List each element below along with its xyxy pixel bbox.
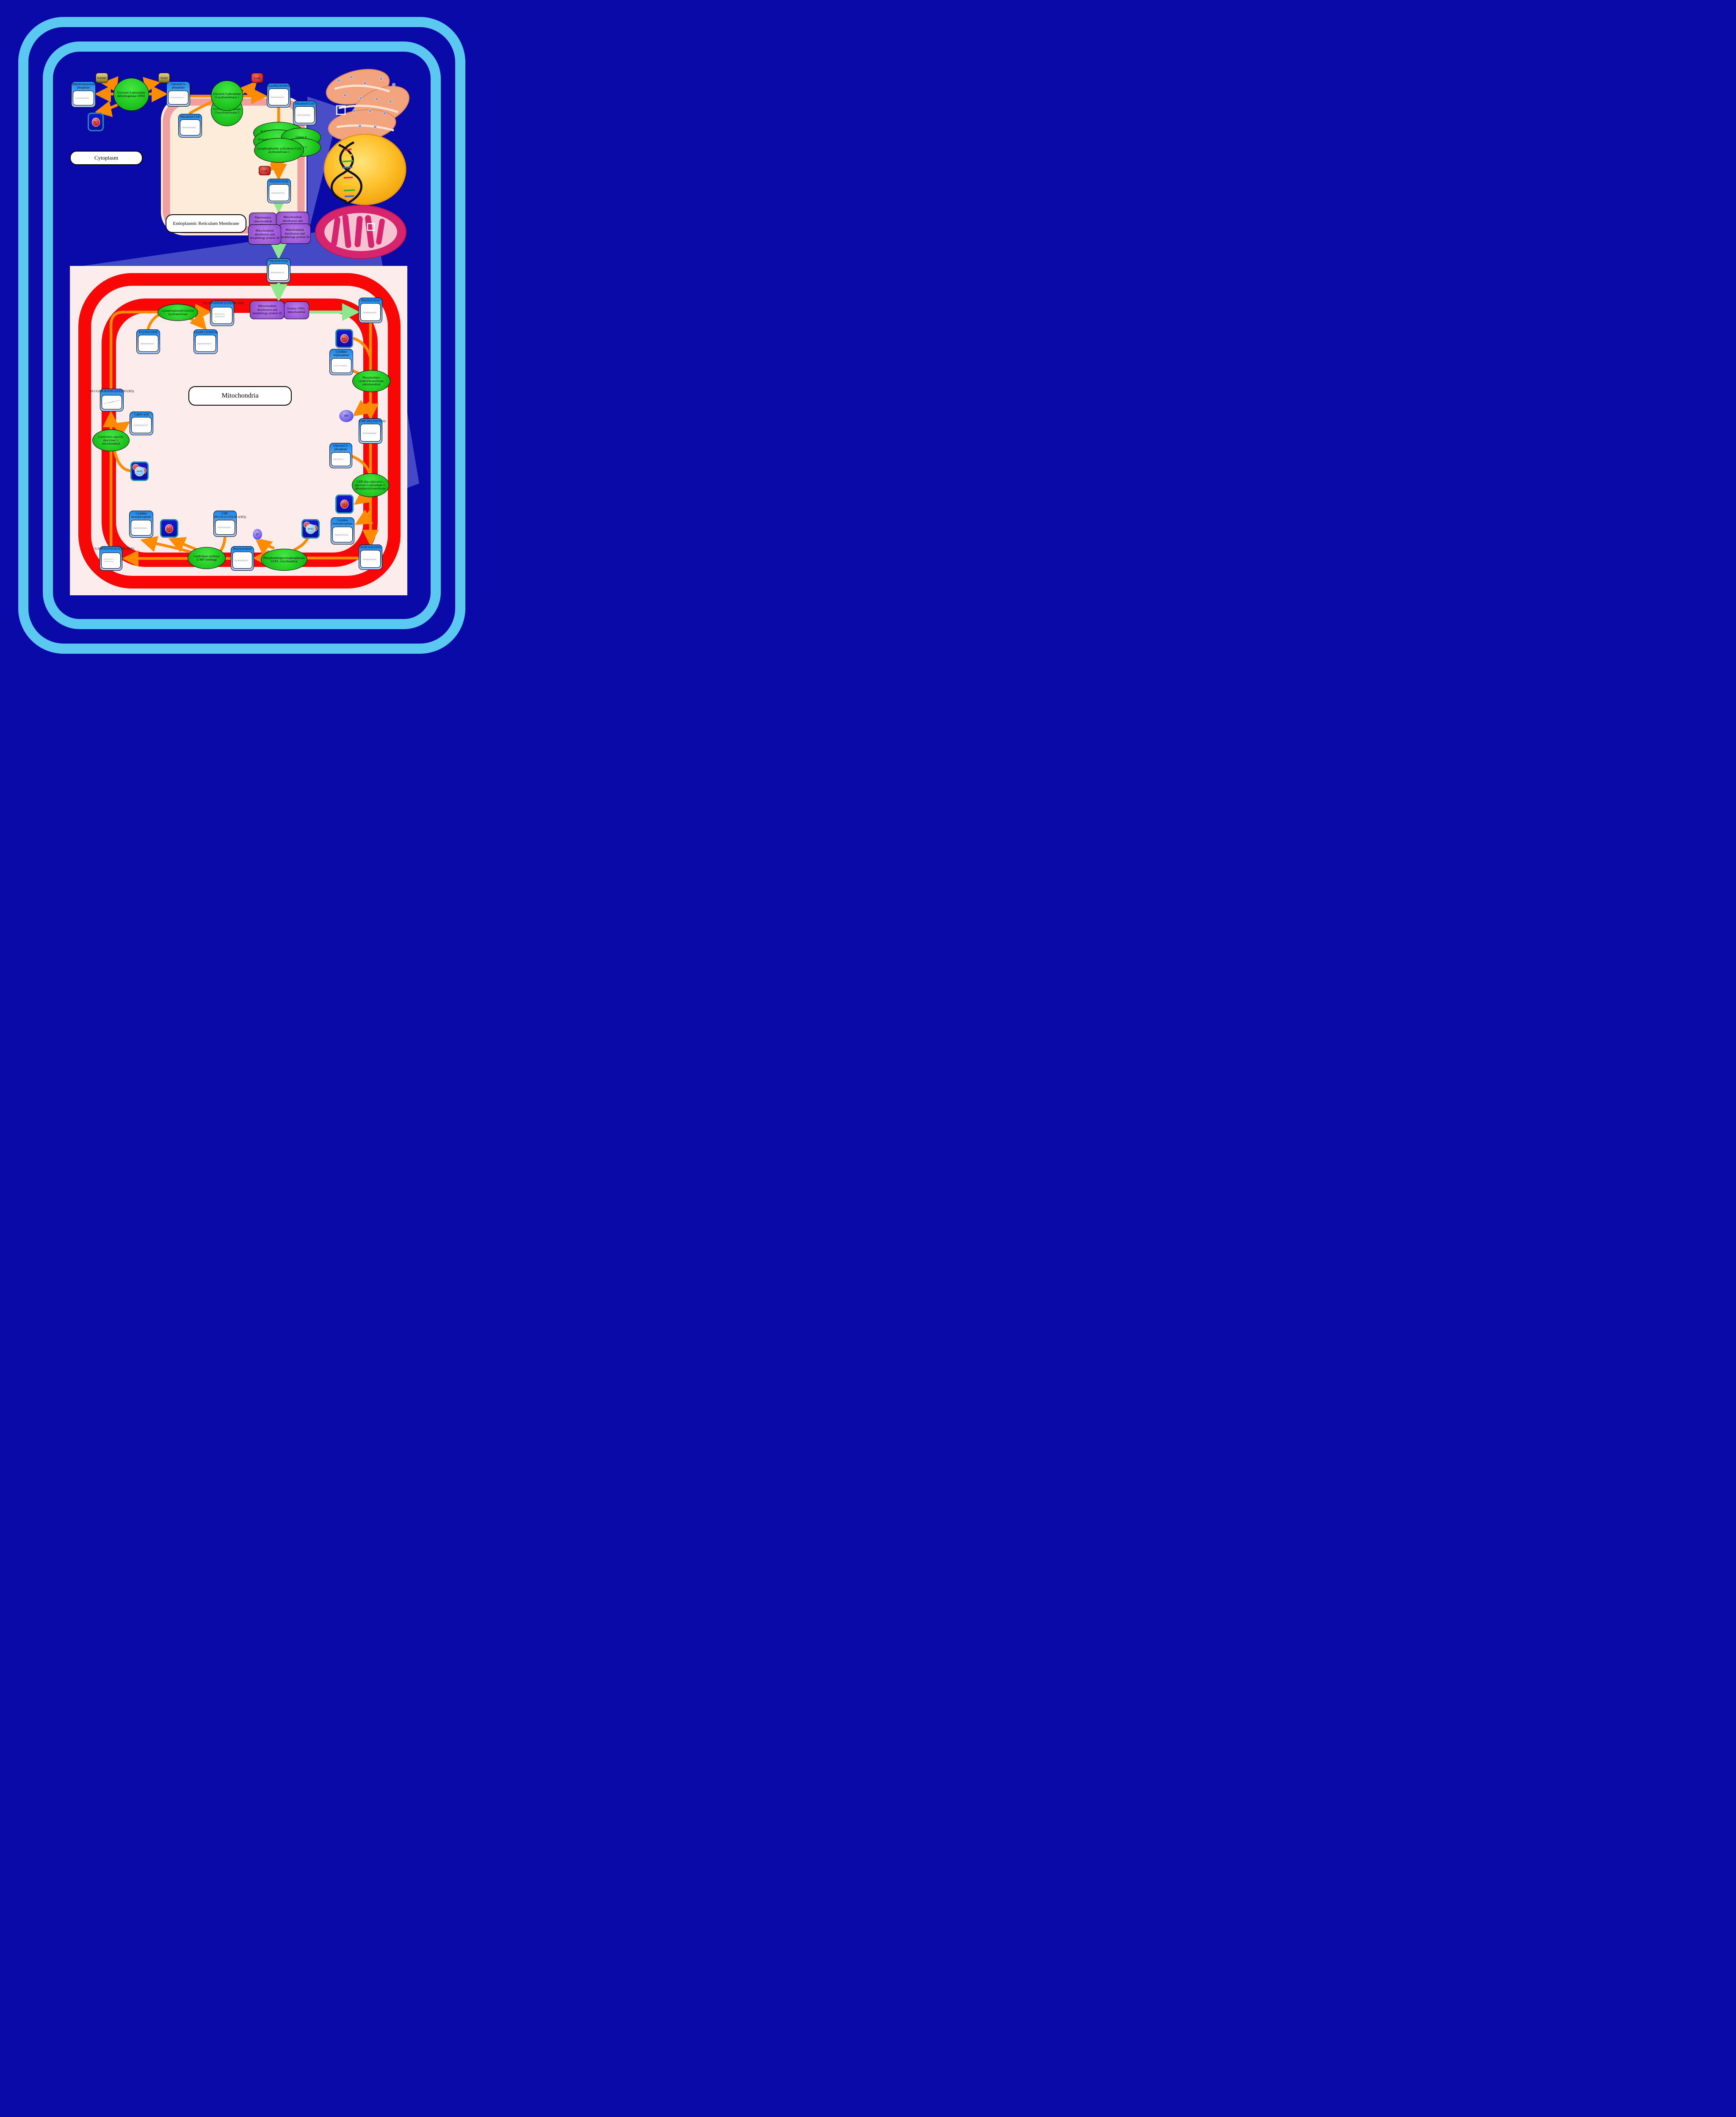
metabolite-label: Capric acid — [130, 412, 153, 416]
metabolite-label: PG(10:0/10:0) — [231, 547, 254, 551]
protein-mdm10[interactable]: Mitochondrial distribution and morpholog… — [279, 224, 311, 244]
metabolite-cdpdg[interactable]: CDP-DG(10:0/10:0) — [359, 418, 382, 444]
molecule-structure-icon — [270, 269, 287, 275]
metabolite-label: LysoPC(10:0/0:0) — [194, 330, 217, 334]
metabolite-label: Decanoyl-CoA — [293, 101, 316, 105]
cofactor-nadh[interactable]: NADH — [96, 73, 108, 83]
er-membrane-label-text: Endoplasmic Reticulum Membrane — [173, 221, 239, 227]
molecule-structure-icon — [75, 95, 92, 101]
molecule-structure-icon — [296, 112, 313, 118]
enzyme-pa-cytidylyltransferase[interactable]: Phosphatidate cytidylyltransferase, mito… — [352, 370, 390, 392]
molecule-structure-icon — [133, 525, 149, 531]
metabolite-lysopc[interactable]: LysoPC(10:0/0:0) — [194, 329, 218, 354]
mitochondria-label: Mitochondria — [188, 386, 292, 406]
cofactor-coa-top[interactable]: CoA — [251, 73, 263, 83]
protein-mdm34[interactable]: Mitochondrial distribution and morpholog… — [248, 224, 281, 245]
molecule-structure-icon — [362, 430, 379, 436]
metabolite-g3p-mito[interactable]: Glycerol 3-phosphate — [329, 443, 352, 468]
er-organelle-illustration — [323, 64, 415, 145]
metabolite-cmp-left[interactable]: Cytidine monophosphate — [129, 511, 153, 538]
metabolite-lysopa[interactable]: LysoPA(10:0/0:0) — [267, 83, 290, 108]
h2o-label-o: O — [311, 528, 313, 531]
metabolite-label: PA(10:0/10:0) — [268, 179, 290, 183]
metabolite-label-line2: DG(18:1(11Z)/28:1(9Z)) — [214, 515, 246, 519]
enzyme-cl-deacylase[interactable]: Cardiolipin-specific deacylase 1, mitoch… — [92, 429, 130, 451]
enzyme-lpaat1[interactable]: Lysophosphatidic acid:oleoyl-CoA acyltra… — [254, 138, 304, 163]
protein-mdm35[interactable]: Mitochondrial distribution and morpholog… — [250, 301, 285, 319]
metabolite-pa-mito[interactable]: PA(10:0/10:0) — [359, 298, 382, 323]
molecule-structure-icon — [333, 456, 349, 462]
cofactor-label: CoA — [262, 169, 268, 173]
cofactor-h2o-right[interactable]: H2O — [301, 519, 320, 539]
protein-label: Mitochondrial distribution and morpholog… — [249, 229, 280, 240]
metabolite-label: Dihydroxyacetone phosphate — [72, 82, 95, 90]
molecule-structure-icon — [217, 525, 233, 530]
metabolite-cl-bottom-label: CL(10:0/10:0/18:1(11Z)/28:1(9Z)) — [93, 547, 134, 550]
metabolite-label: Glycerol 3-phosphate — [167, 82, 190, 90]
enzyme-gep4[interactable]: Phosphatidylglycerophosphatase GEP4, mit… — [261, 549, 307, 571]
molecule-structure-icon — [103, 558, 119, 564]
h-ion-charge: + — [345, 503, 346, 506]
pathway-canvas: Cytoplasm Endoplasmic Reticulum Membrane… — [0, 0, 483, 671]
metabolite-pa-er[interactable]: PA(10:0/10:0) — [267, 179, 291, 203]
ppi-label: PP — [344, 414, 348, 418]
protein-label: Mitochondrial distribution and morpholog… — [280, 228, 310, 239]
cofactor-pi[interactable]: Pi — [252, 528, 263, 540]
metabolite-label: CDP-DG(10:0/10:0) — [359, 419, 382, 423]
mitochondrion-illustration — [315, 205, 406, 259]
metabolite-label: LysoPA(10:0/0:0) — [267, 83, 290, 88]
metabolite-cmp-right[interactable]: Cytidine monophosphate — [331, 517, 354, 544]
metabolite-capric-acid[interactable]: Capric acid — [130, 412, 153, 435]
enzyme-gpat1[interactable]: Glycerol-3-phosphate O-acyltransferase 1 — [211, 80, 243, 111]
molecule-structure-icon — [334, 532, 351, 537]
enzyme-gpd2[interactable]: Glycerol-3-phosphate dehydrogenase GPD2 — [113, 78, 149, 111]
molecule-structure-icon — [213, 312, 230, 318]
pi-subscript: i — [258, 533, 259, 536]
molecule-structure-icon — [270, 94, 287, 100]
molecule-structure-icon — [362, 309, 379, 315]
cofactor-h-plus-right-top[interactable]: H+ — [335, 329, 353, 348]
metabolite-cl-top-label: CL(10:0/10:0/18:1(11Z)/28:1(9Z)) — [202, 301, 243, 305]
cofactor-label: NADH — [97, 76, 107, 80]
enzyme-label: Lysophosphatidic acid:oleoyl-CoA acyltra… — [256, 147, 302, 154]
cofactor-label: NAD — [160, 76, 167, 80]
metabolite-label: CDP- DG(18:1(11Z)/28:1(9Z)) — [214, 511, 236, 519]
cofactor-h-plus-right-low[interactable]: H+ — [335, 495, 354, 514]
enzyme-label: Glycerol-3-phosphate O-acyltransferase 1 — [213, 92, 241, 99]
h2o-label-o: O — [140, 470, 142, 473]
metabolite-dhap[interactable]: Dihydroxyacetone phosphate — [71, 81, 96, 108]
nucleus-illustration — [324, 134, 406, 205]
cofactor-ppi[interactable]: PPi — [339, 409, 354, 423]
enzyme-cl-synthase[interactable]: Cardiolipin synthase (CMP-forming) — [188, 547, 226, 569]
enzyme-label: Cardiolipin-specific deacylase 1, mitoch… — [94, 435, 128, 445]
molecule-structure-icon — [133, 422, 150, 428]
metabolite-decanoyl-coa-er[interactable]: Decanoyl-CoA — [178, 114, 202, 138]
enzyme-label: Glycerol-3-phosphate dehydrogenase GPD2 — [115, 91, 147, 98]
molecule-structure-icon — [103, 400, 120, 405]
protein-ups1[interactable]: Protein UPS1, mitochondrial — [284, 301, 309, 319]
enzyme-label: Phosphatidate cytidylyltransferase, mito… — [354, 376, 389, 386]
metabolite-ctp[interactable]: Cytidine triphosphate — [329, 349, 353, 375]
molecule-structure-icon — [182, 124, 199, 130]
enzyme-cdp-dag-g3p-transferase[interactable]: CDP-diacylglycerol--glycerol-3-phosphate… — [352, 473, 389, 497]
molecule-structure-icon — [333, 363, 350, 368]
metabolite-label: PA(10:0/10:0) — [359, 298, 382, 302]
enzyme-label: Cardiolipin synthase (CMP-forming) — [189, 555, 224, 561]
h-ion-charge: + — [96, 121, 97, 123]
cytoplasm-label: Cytoplasm — [70, 151, 143, 165]
metabolite-label: PGP(10:0/10:0) — [359, 545, 382, 549]
ppi-subscript: i — [348, 415, 349, 417]
cofactor-coa-mid[interactable]: CoA — [259, 166, 271, 175]
cofactor-nad[interactable]: NAD — [158, 73, 170, 83]
metabolite-decanoyl-coa-right[interactable]: Decanoyl-CoA — [293, 101, 316, 125]
protein-label: Mitochondrial distribution and morpholog… — [251, 304, 283, 315]
metabolite-label: PC(10:0/10:0) — [137, 330, 160, 334]
h-ion-charge: + — [345, 337, 346, 340]
metabolite-label: PA(10:0/10:0) — [267, 259, 290, 263]
molecule-structure-icon — [197, 340, 214, 346]
h-ion-charge: + — [170, 527, 171, 530]
metabolite-label: Cytidine monophosphate — [331, 518, 354, 526]
metabolite-label: Cytidine triphosphate — [330, 349, 353, 357]
metabolite-pa-mid[interactable]: PA(10:0/10:0) — [267, 258, 290, 283]
molecule-structure-icon — [234, 557, 251, 563]
cofactor-h-plus-cytoplasm[interactable]: H+ — [88, 113, 104, 131]
cytoplasm-label-text: Cytoplasm — [94, 155, 118, 161]
enzyme-label: Phosphatidylglycerophosphatase GEP4, mit… — [263, 556, 306, 563]
cofactor-label: CoA — [254, 76, 260, 80]
metabolite-label: Cytidine monophosphate — [130, 511, 153, 519]
metabolite-pc[interactable]: PC(10:0/10:0) — [136, 329, 160, 354]
metabolite-g3p[interactable]: Glycerol 3-phosphate — [166, 81, 190, 107]
molecule-structure-icon — [140, 340, 157, 346]
metabolite-pg[interactable]: PG(10:0/10:0) — [231, 546, 254, 571]
protein-label: Protein UPS1, mitochondrial — [285, 307, 308, 314]
metabolite-cdpdg-181[interactable]: CDP- DG(18:1(11Z)/28:1(9Z)) — [213, 511, 237, 537]
metabolite-mlcl-label: MLCL(0:0/10:0/18:1(11Z)/28:1(9Z)) — [90, 390, 134, 393]
mitochondria-label-text: Mitochondria — [221, 392, 258, 400]
metabolite-pgp[interactable]: PGP(10:0/10:0) — [359, 544, 382, 570]
enzyme-lpcat[interactable]: Lysophosphatidylcholine acyltransferase — [158, 304, 198, 321]
molecule-structure-icon — [170, 95, 187, 100]
cofactor-h-plus-bottom-left[interactable]: H+ — [160, 519, 178, 538]
molecule-structure-icon — [271, 190, 287, 196]
metabolite-label: Decanoyl-CoA — [179, 114, 202, 119]
enzyme-label: Lysophosphatidylcholine acyltransferase — [159, 309, 196, 316]
er-membrane-label: Endoplasmic Reticulum Membrane — [166, 214, 246, 233]
enzyme-label: CDP-diacylglycerol--glycerol-3-phosphate… — [354, 480, 387, 490]
molecule-structure-icon — [362, 556, 379, 562]
metabolite-label: Glycerol 3-phosphate — [330, 443, 352, 451]
cofactor-h2o-left[interactable]: H2O — [130, 462, 149, 481]
